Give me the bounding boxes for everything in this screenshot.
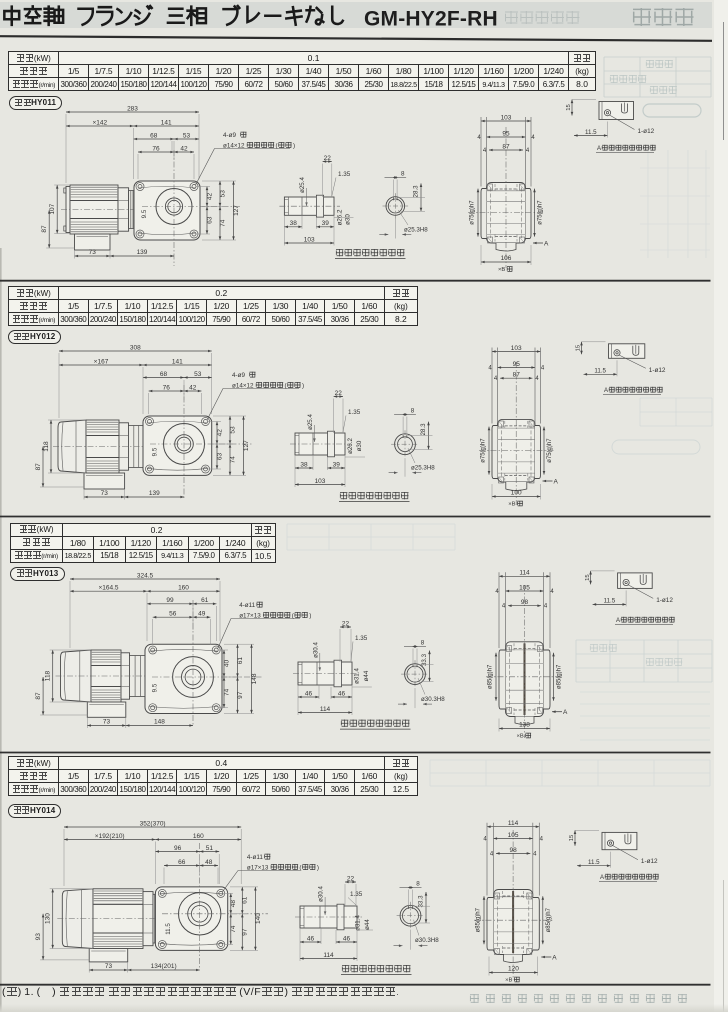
svg-text:15: 15 <box>576 345 582 351</box>
svg-text:ø30.4: ø30.4 <box>312 642 319 658</box>
svg-text:48: 48 <box>230 900 237 908</box>
svg-text:127: 127 <box>243 440 250 451</box>
svg-text:61: 61 <box>237 657 244 665</box>
svg-text:ø75(g)h7: ø75(g)h7 <box>538 200 544 225</box>
svg-text:42: 42 <box>180 145 188 152</box>
svg-text:308: 308 <box>130 344 141 351</box>
svg-text:A: A <box>552 955 557 962</box>
svg-text:46: 46 <box>305 690 313 697</box>
svg-text:33.3: 33.3 <box>418 895 425 908</box>
svg-text:1-ø12: 1-ø12 <box>641 858 658 865</box>
svg-text:ø25.4: ø25.4 <box>307 414 314 430</box>
svg-text:15: 15 <box>566 104 572 110</box>
svg-text:61: 61 <box>242 896 249 904</box>
svg-text:103: 103 <box>501 114 512 121</box>
svg-text:): ) <box>302 383 304 390</box>
svg-text:95: 95 <box>502 130 510 137</box>
svg-text:87: 87 <box>35 692 42 700</box>
svg-text:×B: ×B <box>498 267 505 273</box>
svg-text:ø44: ø44 <box>364 919 371 930</box>
svg-text:A: A <box>616 618 620 624</box>
svg-text:4-ø9: 4-ø9 <box>223 132 236 139</box>
svg-text:28.3: 28.3 <box>413 185 420 198</box>
svg-text:ø75(g)h7: ø75(g)h7 <box>547 438 553 463</box>
svg-text:×B: ×B <box>508 502 515 508</box>
svg-text:105: 105 <box>519 584 530 591</box>
svg-text:51: 51 <box>206 845 214 852</box>
svg-text:140: 140 <box>255 913 262 924</box>
svg-text:139: 139 <box>149 490 160 497</box>
svg-text:4: 4 <box>550 589 554 595</box>
svg-text:×B: ×B <box>517 734 524 740</box>
svg-text:42: 42 <box>216 429 223 437</box>
svg-text:134(201): 134(201) <box>151 963 177 970</box>
svg-text:ø31.4: ø31.4 <box>355 915 362 931</box>
svg-text:×142: ×142 <box>92 119 107 126</box>
svg-text:): ) <box>293 143 295 150</box>
svg-text:42: 42 <box>189 384 197 391</box>
svg-text:4: 4 <box>544 604 548 610</box>
svg-text:95: 95 <box>513 361 521 368</box>
svg-text:4-ø9: 4-ø9 <box>232 372 245 379</box>
svg-text:127: 127 <box>233 205 240 216</box>
svg-text:A: A <box>544 241 549 248</box>
svg-text:GM-HY2F-RH: GM-HY2F-RH <box>364 8 498 31</box>
svg-text:1.35: 1.35 <box>350 891 363 898</box>
svg-text:4: 4 <box>535 376 539 382</box>
svg-text:40: 40 <box>223 660 230 668</box>
svg-text:4: 4 <box>541 366 545 372</box>
svg-text:ø44: ø44 <box>363 670 370 681</box>
svg-text:38: 38 <box>290 220 298 227</box>
svg-text:103: 103 <box>304 236 315 243</box>
svg-text:22: 22 <box>335 390 343 397</box>
svg-text:4-ø11: 4-ø11 <box>239 602 255 609</box>
svg-text:73: 73 <box>105 963 113 970</box>
svg-text:11.5: 11.5 <box>165 923 172 935</box>
svg-text:): ) <box>309 613 311 620</box>
svg-text:ø25.4: ø25.4 <box>299 177 306 193</box>
svg-text:28.3: 28.3 <box>420 423 427 436</box>
svg-text:103: 103 <box>315 478 326 485</box>
svg-text:148: 148 <box>154 719 165 726</box>
svg-text:100: 100 <box>511 490 522 497</box>
svg-text:A: A <box>600 875 604 881</box>
svg-text:73: 73 <box>103 719 111 726</box>
svg-text:42: 42 <box>206 193 213 201</box>
svg-text:114: 114 <box>519 570 530 577</box>
svg-text:1-ø12: 1-ø12 <box>649 367 666 374</box>
svg-text:114: 114 <box>508 820 519 827</box>
svg-text:11.5: 11.5 <box>588 859 600 866</box>
svg-text:324.5: 324.5 <box>137 572 154 579</box>
svg-text:×167: ×167 <box>94 358 109 365</box>
svg-text:66: 66 <box>178 859 186 866</box>
svg-text:4: 4 <box>533 851 537 857</box>
svg-text:61: 61 <box>201 597 209 604</box>
svg-text:A: A <box>563 709 568 716</box>
svg-text:103: 103 <box>511 345 522 352</box>
svg-text:ø85(g)h7: ø85(g)h7 <box>546 907 552 932</box>
svg-text:38: 38 <box>300 461 308 468</box>
svg-text:ø30: ø30 <box>356 440 363 451</box>
svg-text:×164.5: ×164.5 <box>98 585 118 592</box>
svg-text:4: 4 <box>526 148 530 154</box>
svg-text:8: 8 <box>416 880 420 887</box>
svg-text:74: 74 <box>229 456 236 464</box>
svg-text:98: 98 <box>521 599 529 606</box>
svg-text:138: 138 <box>519 722 530 729</box>
svg-text:97: 97 <box>237 691 244 699</box>
svg-text:×192(210): ×192(210) <box>95 833 125 840</box>
svg-text:139: 139 <box>137 249 148 256</box>
svg-text:130: 130 <box>45 913 52 924</box>
svg-text:160: 160 <box>193 833 204 840</box>
svg-text:53: 53 <box>219 190 226 198</box>
svg-text:49: 49 <box>198 611 206 618</box>
svg-text:33.3: 33.3 <box>421 653 428 666</box>
svg-text:ø85(g)h7: ø85(g)h7 <box>557 664 563 689</box>
svg-text:1-ø12: 1-ø12 <box>638 128 655 135</box>
svg-text:76: 76 <box>152 145 160 152</box>
svg-text:105: 105 <box>508 832 519 839</box>
svg-text:53: 53 <box>183 132 191 139</box>
svg-text:46: 46 <box>338 690 346 697</box>
svg-text:63: 63 <box>216 453 223 461</box>
svg-text:4-ø11: 4-ø11 <box>247 854 263 861</box>
svg-text:96: 96 <box>174 845 182 852</box>
svg-text:68: 68 <box>150 132 158 139</box>
svg-text:22: 22 <box>342 620 350 627</box>
svg-text:106: 106 <box>501 255 512 262</box>
svg-text:1.35: 1.35 <box>348 409 361 416</box>
svg-text:56: 56 <box>169 611 177 618</box>
svg-text:74: 74 <box>219 219 226 227</box>
svg-text:73: 73 <box>89 249 97 256</box>
svg-text:4: 4 <box>540 837 544 843</box>
svg-text:352(370): 352(370) <box>140 820 166 827</box>
svg-text:74: 74 <box>223 688 230 696</box>
svg-text:A: A <box>604 388 608 394</box>
svg-text:ø75(g)h7: ø75(g)h7 <box>481 438 487 463</box>
svg-text:39: 39 <box>333 461 341 468</box>
svg-text:48: 48 <box>205 859 213 866</box>
svg-text:22: 22 <box>324 155 332 162</box>
svg-text:ø26.2: ø26.2 <box>347 438 354 454</box>
svg-text:1.35: 1.35 <box>355 635 368 642</box>
svg-text:87: 87 <box>41 225 48 233</box>
svg-text:114: 114 <box>323 952 334 959</box>
svg-text:93: 93 <box>35 933 42 941</box>
svg-text:ø30.3H8: ø30.3H8 <box>415 937 439 944</box>
svg-text:76: 76 <box>163 384 171 391</box>
svg-text:22: 22 <box>347 875 355 882</box>
svg-text:97: 97 <box>242 928 249 936</box>
svg-text:87: 87 <box>35 463 42 471</box>
svg-text:114: 114 <box>320 706 331 713</box>
svg-text:9.5: 9.5 <box>152 683 159 692</box>
svg-text:1.35: 1.35 <box>338 171 351 178</box>
svg-text:A: A <box>597 146 601 152</box>
svg-text:74: 74 <box>230 925 237 933</box>
svg-text:ø30.4: ø30.4 <box>318 886 325 902</box>
svg-text:120: 120 <box>508 966 519 973</box>
svg-text:160: 160 <box>178 585 189 592</box>
svg-text:ø85(g)h7: ø85(g)h7 <box>488 664 494 689</box>
svg-text:11.5: 11.5 <box>594 368 606 375</box>
svg-text:87: 87 <box>502 143 510 150</box>
svg-text:4: 4 <box>531 135 535 141</box>
svg-text:46: 46 <box>307 935 315 942</box>
svg-text:46: 46 <box>343 935 351 942</box>
svg-text:ø25.3H8: ø25.3H8 <box>404 227 428 234</box>
svg-text:141: 141 <box>172 358 183 365</box>
svg-text:): ) <box>317 865 319 872</box>
svg-text:87: 87 <box>513 372 521 379</box>
svg-text:11.5: 11.5 <box>585 129 597 136</box>
svg-text:ø30: ø30 <box>345 214 352 225</box>
svg-text:A: A <box>554 479 559 486</box>
svg-text:15: 15 <box>569 835 575 841</box>
svg-text:98: 98 <box>509 847 517 854</box>
svg-text:1-ø12: 1-ø12 <box>656 597 673 604</box>
svg-text:39: 39 <box>322 220 330 227</box>
svg-text:118: 118 <box>45 670 52 681</box>
svg-text:283: 283 <box>127 105 138 112</box>
svg-text:ø25.3H8: ø25.3H8 <box>411 465 435 472</box>
svg-text:×B: ×B <box>505 978 512 984</box>
svg-text:8: 8 <box>411 407 415 414</box>
svg-text:73: 73 <box>101 490 109 497</box>
svg-text:ø75(g)h7: ø75(g)h7 <box>470 200 476 225</box>
svg-text:15: 15 <box>585 574 591 580</box>
svg-text:ø30.3H8: ø30.3H8 <box>421 696 445 703</box>
svg-text:8: 8 <box>421 639 425 646</box>
svg-text:53: 53 <box>229 426 236 434</box>
svg-text:63: 63 <box>206 216 213 224</box>
svg-text:99: 99 <box>166 597 174 604</box>
svg-text:53: 53 <box>194 371 202 378</box>
svg-text:148: 148 <box>251 673 258 684</box>
svg-text:11.5: 11.5 <box>604 598 616 605</box>
svg-text:ø31.4: ø31.4 <box>353 668 360 684</box>
svg-text:68: 68 <box>160 371 168 378</box>
svg-text:8: 8 <box>401 170 405 177</box>
svg-text:ø85(g)h7: ø85(g)h7 <box>476 907 482 932</box>
svg-text:141: 141 <box>161 119 172 126</box>
svg-text:9.5: 9.5 <box>141 209 148 218</box>
svg-text:9.5: 9.5 <box>152 447 159 456</box>
